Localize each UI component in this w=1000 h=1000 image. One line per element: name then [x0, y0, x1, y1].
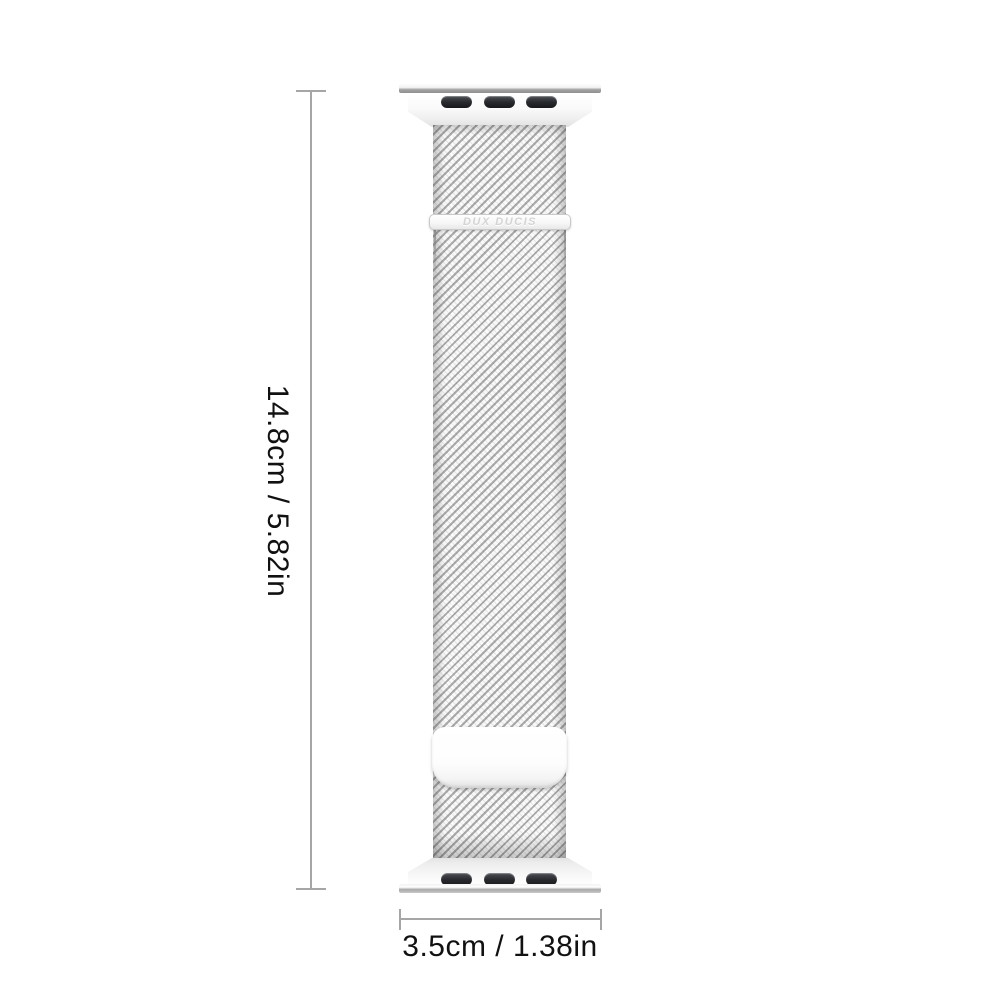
band-overlap-edge-right — [564, 230, 566, 278]
lug-slot-top-right — [526, 96, 557, 108]
brand-engraving: DUX DUCIS — [463, 217, 537, 228]
slide-buckle: DUX DUCIS — [429, 214, 571, 230]
width-dimension-tick-right — [600, 909, 602, 930]
width-dimension-label: 3.5cm / 1.38in — [350, 932, 650, 962]
magnetic-clasp-plate — [432, 727, 567, 788]
lug-slot-top-left — [441, 96, 472, 108]
lug-slot-top-center — [484, 96, 515, 108]
mesh-shadow-bottom — [433, 834, 566, 858]
watch-connector-bar-top — [399, 84, 601, 93]
mesh-shadow-top — [433, 125, 566, 135]
width-dimension-line — [400, 918, 602, 920]
height-dimension-cap-bottom — [296, 888, 326, 890]
product-image: 14.8cm / 5.82in 3.5cm / 1.38in DUX DUCIS — [0, 0, 1000, 1000]
watch-connector-bar-bottom — [399, 884, 601, 893]
band-overlap-edge-left — [434, 230, 436, 278]
height-dimension-label: 14.8cm / 5.82in — [262, 385, 292, 598]
height-dimension-line — [310, 91, 312, 889]
